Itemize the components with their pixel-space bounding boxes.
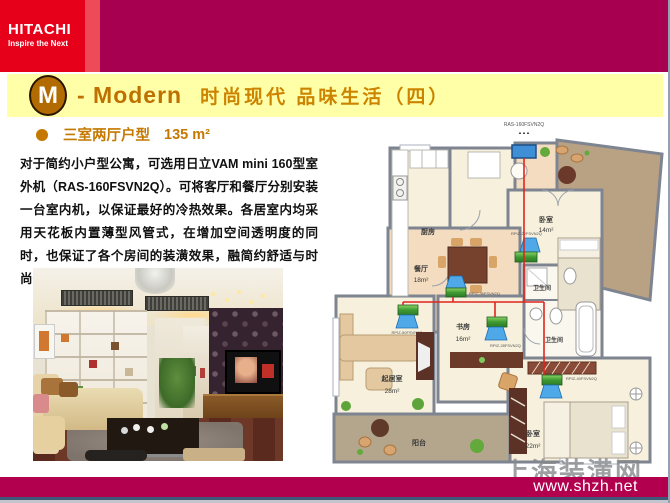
- window: [333, 318, 339, 396]
- indoor-unit-icon: [515, 252, 537, 262]
- study-unit-label: RPIZ-28FSVN2Q: [490, 343, 521, 348]
- hitachi-logo: HITACHI Inspire the Next: [0, 0, 85, 72]
- terrace-table: [558, 166, 576, 184]
- outdoor-unit-icon: [512, 145, 536, 158]
- tv-screen: [225, 350, 281, 394]
- study-area: 16m²: [456, 336, 472, 343]
- subtitle-row: 三室两厅户型 135 m²: [36, 124, 210, 145]
- indoor-unit-fan-icon: [396, 315, 418, 328]
- dining-area: 18m²: [414, 277, 430, 284]
- subtitle-label: 三室两厅户型: [63, 124, 150, 145]
- living-label: 起居室: [381, 374, 403, 383]
- brand-tagline: Inspire the Next: [8, 39, 85, 48]
- airflow-arrows-icon: ▲▲▲: [518, 130, 530, 135]
- pillow: [612, 406, 625, 428]
- subtitle-area: 135 m²: [164, 127, 210, 143]
- chandelier: [135, 268, 175, 294]
- indoor-unit-icon: [398, 305, 418, 315]
- desk-plant: [479, 357, 485, 363]
- bath1-label: 卫生间: [533, 284, 551, 292]
- indoor-unit-fan-icon: [485, 327, 507, 340]
- indoor-unit-fan-icon: [446, 276, 466, 288]
- desk: [450, 352, 523, 368]
- indoor-unit-icon: [446, 288, 466, 297]
- ac-duct-vent: [145, 296, 209, 311]
- kitchen-label: 厨房: [421, 227, 435, 236]
- outdoor-unit-label: RAS-160FSVN2Q: [504, 122, 544, 128]
- terrace-chair: [556, 146, 568, 154]
- sofa: [340, 335, 418, 361]
- ac-duct-vent: [61, 290, 133, 306]
- m-badge-icon: M: [29, 75, 67, 116]
- living-room-photo: [33, 268, 283, 461]
- bullet-icon: [36, 129, 48, 141]
- footer-url-link[interactable]: www.shzh.net: [533, 478, 638, 496]
- title-english: - Modern: [77, 82, 182, 109]
- study-label: 书房: [456, 322, 470, 331]
- balcony-chair: [359, 437, 371, 447]
- indoor-unit-icon: [542, 375, 562, 385]
- shelf-decor: [61, 334, 69, 342]
- toilet: [550, 308, 562, 324]
- indoor-unit-fan-icon: [540, 385, 562, 398]
- kitchen-cabinet: [410, 150, 448, 168]
- indoor-unit-fan-icon: [520, 238, 540, 252]
- sink: [530, 308, 542, 320]
- sofa-arm: [33, 416, 65, 450]
- plant: [412, 398, 424, 410]
- plant: [341, 401, 351, 411]
- balcony-label: 阳台: [412, 438, 426, 447]
- bedroom2-unit-label: RPIZ-40FSVN2Q: [566, 376, 597, 381]
- toilet: [564, 268, 576, 284]
- cushion: [59, 382, 78, 397]
- balcony-chair: [384, 445, 396, 455]
- dining-label: 餐厅: [413, 264, 428, 273]
- pillow: [560, 240, 598, 250]
- floor-plan: RAS-160FSVN2Q ▲▲▲ 卧室 14m² RPIZ-22FSVN2Q …: [330, 118, 668, 468]
- fridge: [468, 152, 500, 178]
- bath2-label: 卫生间: [545, 336, 563, 344]
- wall-picture: [34, 324, 55, 359]
- chair: [470, 238, 482, 246]
- ottoman: [183, 448, 245, 461]
- plant: [540, 147, 550, 157]
- top-band: [100, 0, 668, 72]
- slide: HITACHI Inspire the Next M - Modern 时尚现代…: [0, 0, 670, 503]
- tv-cabinet: [203, 394, 283, 421]
- chair: [438, 256, 446, 268]
- dining-unit-label: RPIZ-36FSVN2Q: [469, 291, 500, 296]
- blanket: [558, 258, 600, 310]
- bedroom2-area: 22m²: [526, 443, 542, 450]
- chair: [489, 256, 497, 268]
- table-items: [133, 424, 140, 431]
- title-chinese: 时尚现代 品味生活（四）: [200, 82, 450, 109]
- indoor-unit-icon: [487, 317, 507, 327]
- bedroom2-label: 卧室: [526, 429, 540, 438]
- pillow: [612, 432, 625, 454]
- terrace-chair: [571, 154, 583, 162]
- living-area: 28m²: [385, 388, 401, 395]
- brand-name: HITACHI: [8, 21, 85, 38]
- balcony-table: [371, 419, 389, 437]
- bedroom1-label: 卧室: [539, 215, 553, 224]
- plant: [470, 439, 484, 453]
- bedroom1-unit-label: RPIZ-22FSVN2Q: [511, 231, 542, 236]
- kitchen-counter: [392, 150, 408, 296]
- plant: [585, 151, 590, 156]
- floor-plan-svg: RAS-160FSVN2Q ▲▲▲ 卧室 14m² RPIZ-22FSVN2Q …: [330, 118, 668, 468]
- cushion: [33, 394, 49, 413]
- accent-chair: [85, 450, 147, 461]
- ceiling-spotlights: [211, 292, 215, 296]
- title-band: M - Modern 时尚现代 品味生活（四）: [7, 74, 663, 117]
- accent-strip: [85, 0, 100, 72]
- chair: [451, 238, 463, 246]
- plant: [357, 449, 363, 455]
- potted-plant: [159, 358, 195, 408]
